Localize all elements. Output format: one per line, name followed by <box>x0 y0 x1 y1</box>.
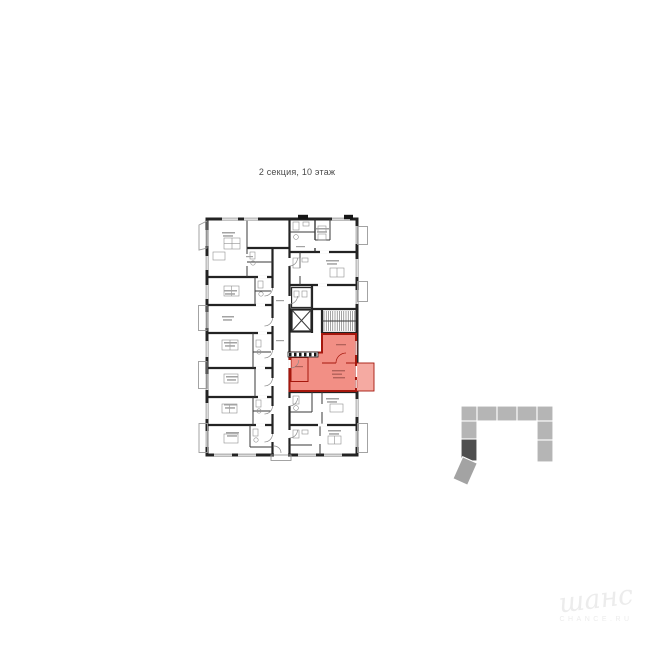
highlighted-apartment <box>288 334 374 391</box>
staircase-icon <box>322 311 356 331</box>
screenshot-canvas: 2 секция, 10 этаж <box>0 0 670 670</box>
building-locator <box>453 406 553 485</box>
floor-plan <box>0 0 670 670</box>
elevator-shaft-icon <box>292 310 312 332</box>
highlighted-balcony <box>357 363 375 391</box>
duct-strip <box>288 352 318 357</box>
